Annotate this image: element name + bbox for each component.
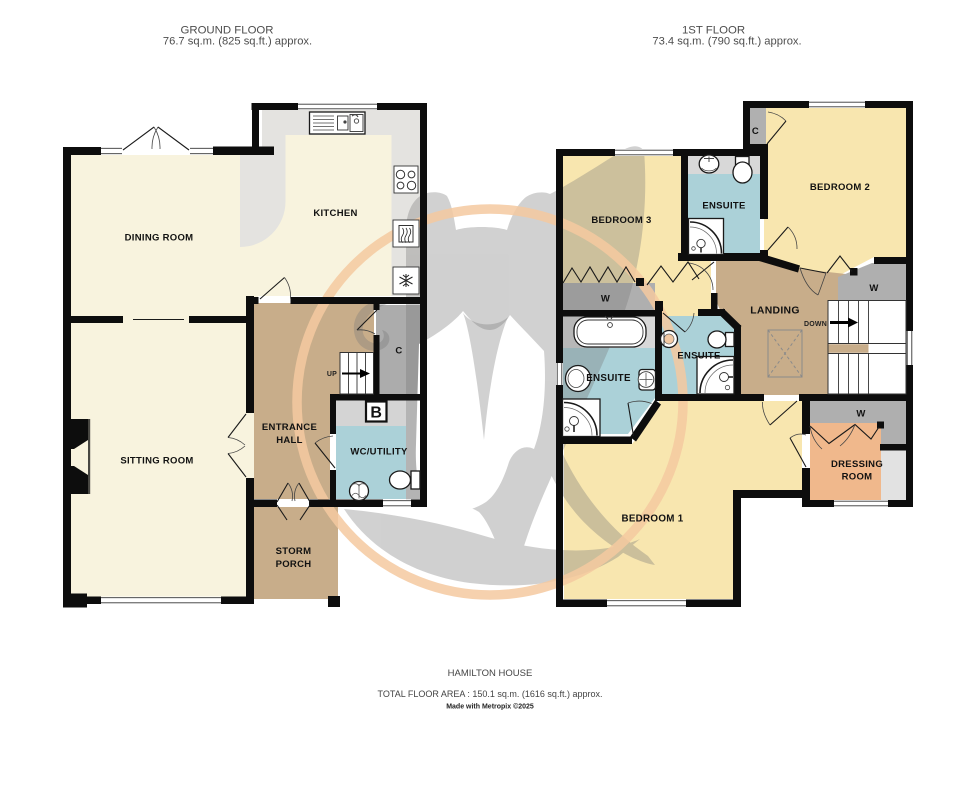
svg-text:B: B [370, 405, 382, 422]
svg-text:LANDING: LANDING [750, 306, 799, 317]
svg-text:ROOM: ROOM [842, 472, 873, 483]
svg-text:Made with Metropix ©2025: Made with Metropix ©2025 [446, 703, 534, 711]
svg-text:KITCHEN: KITCHEN [313, 208, 357, 219]
svg-text:BEDROOM 1: BEDROOM 1 [621, 514, 683, 525]
svg-text:ENSUITE: ENSUITE [702, 201, 745, 212]
svg-text:HALL: HALL [276, 435, 303, 446]
svg-text:ENTRANCE: ENTRANCE [262, 422, 317, 433]
svg-text:TOTAL FLOOR AREA : 150.1 sq.m.: TOTAL FLOOR AREA : 150.1 sq.m. (1616 sq.… [378, 689, 603, 699]
svg-text:ENSUITE: ENSUITE [677, 351, 720, 362]
svg-text:76.7 sq.m. (825 sq.ft.) approx: 76.7 sq.m. (825 sq.ft.) approx. [163, 36, 312, 48]
svg-text:W: W [601, 294, 610, 305]
svg-text:BEDROOM 3: BEDROOM 3 [591, 215, 651, 226]
svg-text:SITTING ROOM: SITTING ROOM [120, 456, 193, 467]
svg-text:WC/UTILITY: WC/UTILITY [350, 447, 408, 458]
svg-text:73.4 sq.m. (790 sq.ft.) approx: 73.4 sq.m. (790 sq.ft.) approx. [652, 36, 801, 48]
svg-text:DINING ROOM: DINING ROOM [125, 233, 194, 244]
svg-text:UP: UP [327, 371, 337, 378]
svg-text:DOWN: DOWN [804, 321, 827, 328]
svg-text:C: C [752, 126, 759, 137]
svg-text:DRESSING: DRESSING [831, 459, 883, 470]
svg-text:W: W [856, 409, 865, 420]
svg-text:C: C [395, 346, 402, 357]
svg-text:BEDROOM 2: BEDROOM 2 [810, 182, 870, 193]
svg-text:HAMILTON HOUSE: HAMILTON HOUSE [448, 668, 533, 679]
svg-text:PORCH: PORCH [276, 559, 312, 570]
svg-text:W: W [869, 283, 878, 294]
svg-text:STORM: STORM [276, 546, 312, 557]
svg-text:ENSUITE: ENSUITE [586, 373, 631, 384]
